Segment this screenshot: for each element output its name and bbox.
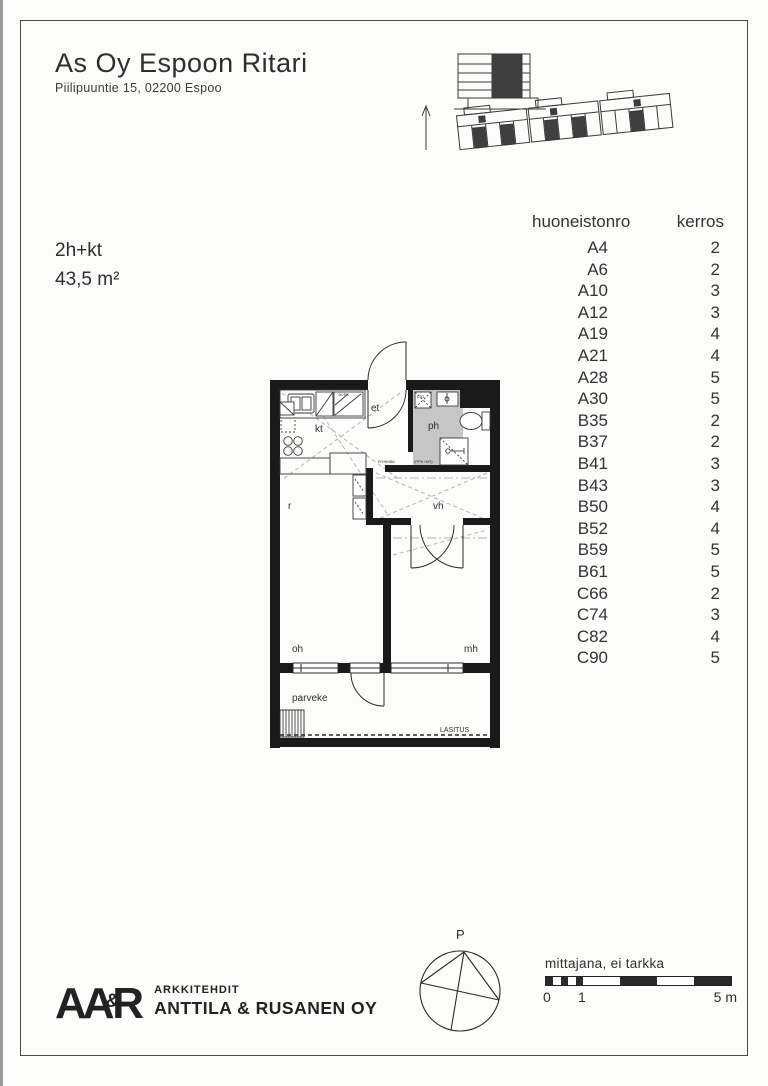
unit-cell: B59	[532, 539, 648, 561]
room-label-mh: mh	[464, 644, 478, 655]
scale-ticks: 0 1 5 m	[545, 989, 735, 1007]
table-row: B504	[532, 496, 724, 518]
compass-graphic	[420, 951, 500, 1031]
plan-sheet: As Oy Espoon Ritari Piilipuuntie 15, 022…	[0, 0, 768, 1086]
room-label-r: r	[288, 501, 292, 512]
table-row: A285	[532, 367, 724, 389]
lto-label: LTO	[417, 394, 424, 399]
table-row: A103	[532, 280, 724, 302]
table-row: B372	[532, 431, 724, 453]
table-row: B433	[532, 475, 724, 497]
scale-tick-0: 0	[543, 989, 551, 1005]
hall-closets	[353, 475, 366, 519]
floor-cell: 2	[648, 410, 724, 432]
logo-monogram: AA&R	[55, 982, 140, 1024]
room-label-et: et	[371, 403, 380, 414]
washer-reservation-label: (PPK+KR)	[414, 459, 433, 464]
table-row: C905	[532, 647, 724, 669]
floor-cell: 4	[648, 323, 724, 345]
unit-cell: C66	[532, 583, 648, 605]
floor-column-header: kerros	[648, 212, 724, 232]
kitchen-fixtures	[280, 390, 366, 474]
table-row: A194	[532, 323, 724, 345]
table-row: B595	[532, 539, 724, 561]
apartment-area: 43,5 m²	[55, 265, 119, 294]
unit-cell: A6	[532, 259, 648, 281]
logo-part2: R	[112, 984, 140, 1024]
room-label-kt: kt	[315, 424, 323, 435]
scan-edge	[0, 0, 3, 1086]
table-row: B413	[532, 453, 724, 475]
table-row: A305	[532, 388, 724, 410]
floor-cell: 5	[648, 561, 724, 583]
floor-cell: 2	[648, 583, 724, 605]
logo-ampersand: &	[106, 982, 116, 1022]
floor-cell: 2	[648, 259, 724, 281]
floor-cell: 4	[648, 496, 724, 518]
apartment-summary: 2h+kt 43,5 m²	[55, 236, 119, 294]
building-section	[454, 54, 546, 109]
floor-cell: 5	[648, 367, 724, 389]
unit-cell: C82	[532, 626, 648, 648]
floor-cell: 2	[648, 237, 724, 259]
unit-cell: B37	[532, 431, 648, 453]
interior-doors	[411, 525, 463, 568]
scale-tick-5: 5 m	[714, 989, 737, 1005]
unit-cell: A10	[532, 280, 648, 302]
floor-cell: 3	[648, 302, 724, 324]
scale-bar: mittajana, ei tarkka 0 1 5 m	[545, 956, 735, 1007]
floor-cell: 3	[648, 604, 724, 626]
table-row: B524	[532, 518, 724, 540]
apartment-table-rows: A42A62A103A123A194A214A285A305B352B372B4…	[532, 237, 724, 669]
unit-cell: A28	[532, 367, 648, 389]
unit-cell: A21	[532, 345, 648, 367]
floor-cell: 5	[648, 539, 724, 561]
logo-line1: ARKKITEHDIT	[154, 984, 377, 996]
unit-cell: B61	[532, 561, 648, 583]
site-plan-drawing	[420, 42, 710, 160]
table-row: A123	[532, 302, 724, 324]
table-row: A62	[532, 259, 724, 281]
windows	[293, 663, 463, 673]
balcony-door	[351, 673, 384, 706]
table-row: C824	[532, 626, 724, 648]
floor-cell: 4	[648, 518, 724, 540]
page-title: As Oy Espoon Ritari	[55, 48, 308, 78]
unit-cell: B43	[532, 475, 648, 497]
site-plan-blocks	[456, 86, 673, 149]
unit-cell: B35	[532, 410, 648, 432]
apartment-type: 2h+kt	[55, 236, 119, 265]
distribution-board-label: RYHMÄK	[378, 459, 395, 464]
table-row: A42	[532, 237, 724, 259]
unit-cell: A30	[532, 388, 648, 410]
table-row: A214	[532, 345, 724, 367]
table-row: B352	[532, 410, 724, 432]
floor-cell: 2	[648, 431, 724, 453]
logo-part1: AA	[55, 984, 111, 1024]
floor-cell: 4	[648, 626, 724, 648]
unit-cell: C90	[532, 647, 648, 669]
architect-logo: AA&R ARKKITEHDIT ANTTILA & RUSANEN OY	[55, 982, 377, 1024]
floor-cell: 5	[648, 388, 724, 410]
apartment-table: huoneistonro kerros A42A62A103A123A194A2…	[532, 212, 724, 669]
apartment-table-header: huoneistonro kerros	[532, 212, 724, 232]
glazing-label: LASITUS	[440, 727, 470, 734]
north-arrow	[422, 106, 430, 150]
unit-cell: C74	[532, 604, 648, 626]
logo-line2: ANTTILA & RUSANEN OY	[154, 998, 377, 1019]
floor-plan-drawing: kt et ph r vh oh mh parveke LASITUS LTO …	[268, 335, 503, 760]
floor-cell: 3	[648, 453, 724, 475]
room-label-oh: oh	[292, 644, 303, 655]
compass-rose: P	[405, 926, 515, 1044]
floor-cell: 3	[648, 475, 724, 497]
scale-tick-1: 1	[578, 989, 586, 1005]
unit-cell: A4	[532, 237, 648, 259]
unit-cell: B50	[532, 496, 648, 518]
floor-cell: 5	[648, 647, 724, 669]
fridge-label: JK/PK	[338, 392, 349, 397]
entrance-door	[368, 342, 406, 428]
table-row: C662	[532, 583, 724, 605]
unit-cell: B52	[532, 518, 648, 540]
room-label-vh: vh	[433, 501, 444, 512]
scale-bar-graphic	[545, 976, 732, 986]
room-label-ph: ph	[428, 421, 439, 432]
north-label: P	[456, 927, 465, 942]
unit-cell: A19	[532, 323, 648, 345]
room-label-parveke: parveke	[292, 693, 328, 704]
unit-cell: A12	[532, 302, 648, 324]
scale-caption: mittajana, ei tarkka	[545, 956, 735, 971]
table-row: B615	[532, 561, 724, 583]
title-block: As Oy Espoon Ritari Piilipuuntie 15, 022…	[55, 48, 308, 95]
floor-cell: 3	[648, 280, 724, 302]
address-line: Piilipuuntie 15, 02200 Espoo	[55, 81, 308, 95]
logo-text: ARKKITEHDIT ANTTILA & RUSANEN OY	[154, 982, 377, 1019]
table-row: C743	[532, 604, 724, 626]
floor-cell: 4	[648, 345, 724, 367]
unit-cell: B41	[532, 453, 648, 475]
unit-column-header: huoneistonro	[532, 212, 648, 232]
